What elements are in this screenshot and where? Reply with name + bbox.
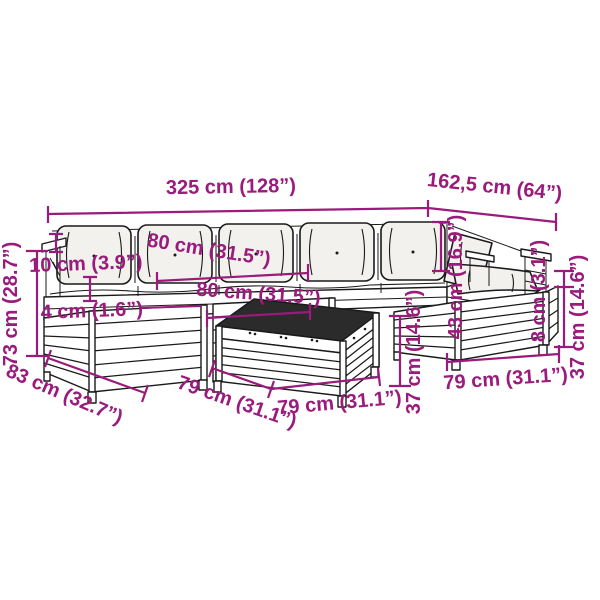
dim-right-section-width-label: 162,5 cm (64”) — [426, 169, 563, 205]
dim-armrest-offset-label: 10 cm (3.9”) — [29, 251, 143, 277]
garden-lounge-set-diagram: 325 cm (128”) 162,5 cm (64”) 80 cm (31.5… — [0, 0, 600, 600]
dim-overall-width-label: 325 cm (128”) — [166, 175, 296, 199]
dim-ottoman-width-label: 79 cm (31.1”) — [443, 364, 569, 395]
dim-table-width-label: 79 cm (31.1”) — [276, 387, 402, 420]
dim-cushion-thickness-label: 8 cm (3.1”) — [528, 240, 550, 342]
dim-overall-width: 325 cm (128”) — [48, 175, 428, 223]
dim-overall-height-label: 73 cm (28.7”) — [0, 242, 22, 367]
dim-seat-height: 37 cm (14.6”) — [567, 255, 589, 380]
back-cushion — [300, 223, 374, 281]
diagram-canvas: 325 cm (128”) 162,5 cm (64”) 80 cm (31.5… — [0, 0, 600, 600]
dim-seat-height-label: 37 cm (14.6”) — [567, 255, 589, 380]
dim-table-height-label: 37 cm (14.6”) — [403, 290, 425, 415]
dim-frame-gap-label: 4 cm (1.6”) — [40, 298, 143, 324]
dim-backrest-height-label: 43 cm (16.9”) — [445, 215, 467, 340]
